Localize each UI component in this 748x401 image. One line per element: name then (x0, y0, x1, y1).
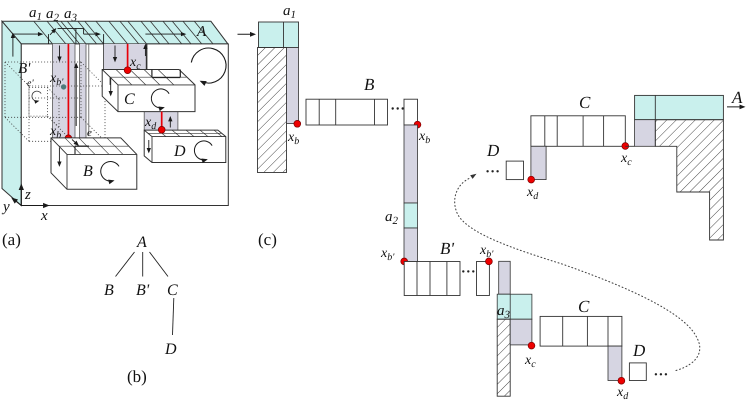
svg-text:C: C (167, 282, 178, 299)
svg-text:e': e' (27, 78, 34, 89)
svg-text:xd: xd (616, 385, 629, 401)
svg-text:D: D (164, 341, 177, 358)
svg-text:D: D (173, 143, 186, 160)
svg-text:xc: xc (524, 353, 536, 370)
svg-text:B': B' (440, 239, 454, 258)
svg-text:B': B' (136, 282, 150, 299)
svg-text:e: e (87, 127, 92, 139)
svg-text:C: C (578, 297, 590, 316)
svg-text:C: C (579, 93, 591, 112)
svg-text:a1: a1 (29, 5, 42, 23)
svg-text:A: A (196, 24, 207, 40)
svg-text:A: A (136, 234, 147, 251)
svg-text:xb: xb (418, 129, 430, 146)
svg-text:A: A (731, 88, 743, 107)
svg-text:y: y (1, 199, 10, 215)
svg-text:xc: xc (620, 151, 632, 168)
svg-text:(b): (b) (127, 367, 147, 386)
svg-text:B': B' (18, 61, 31, 77)
svg-text:xb': xb' (479, 243, 494, 260)
svg-text:xd: xd (526, 185, 539, 202)
svg-text:C: C (124, 91, 135, 108)
svg-text:B: B (364, 75, 375, 94)
svg-text:z: z (24, 187, 31, 203)
svg-text:(a): (a) (2, 230, 21, 249)
svg-text:D: D (632, 341, 646, 360)
svg-text:B: B (104, 282, 114, 299)
svg-text:a2: a2 (385, 209, 399, 227)
svg-text:D: D (486, 141, 500, 160)
svg-text:xb': xb' (380, 246, 395, 263)
svg-text:B: B (83, 163, 93, 180)
svg-text:(c): (c) (258, 230, 277, 249)
svg-text:x: x (40, 208, 48, 224)
svg-text:a1: a1 (283, 3, 296, 21)
svg-text:xb: xb (287, 130, 299, 147)
